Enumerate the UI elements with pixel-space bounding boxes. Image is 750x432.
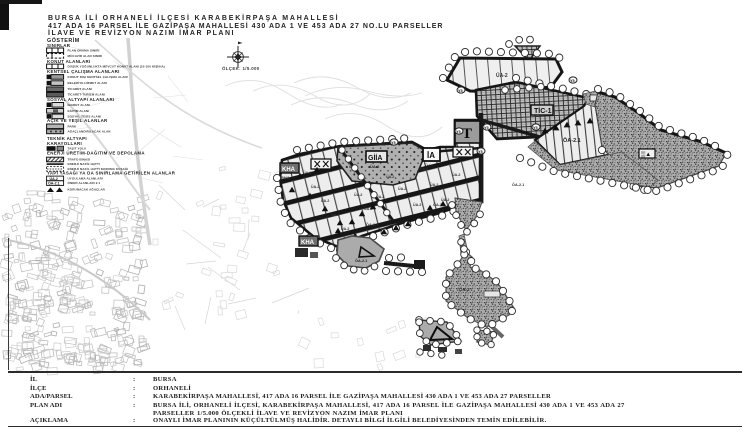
svg-text:ÜA-2: ÜA-2 xyxy=(386,174,394,179)
svg-text:ÜA-2: ÜA-2 xyxy=(321,198,329,203)
svg-text:ÜA-2: ÜA-2 xyxy=(311,184,319,189)
svg-text:ÖA-2.1: ÖA-2.1 xyxy=(563,137,581,144)
svg-text:ÜA-2: ÜA-2 xyxy=(331,212,339,217)
svg-text:ÜA-2: ÜA-2 xyxy=(354,192,362,197)
svg-text:▒▲: ▒▲ xyxy=(641,151,651,158)
svg-text:Y5: Y5 xyxy=(570,79,575,83)
svg-text:TİC-1: TİC-1 xyxy=(534,107,552,115)
svg-text:Y5: Y5 xyxy=(458,89,463,93)
svg-text:BHA: BHA xyxy=(281,175,290,180)
svg-text:ÜA-2: ÜA-2 xyxy=(496,72,508,79)
svg-text:ÜA-2: ÜA-2 xyxy=(441,197,449,202)
svg-text:GİİA: GİİA xyxy=(368,154,382,162)
svg-text:ÖA-2: ÖA-2 xyxy=(459,286,470,292)
svg-text:KHA: KHA xyxy=(301,240,315,246)
svg-text:ÖA-2.1: ÖA-2.1 xyxy=(512,182,524,187)
svg-text:İA: İA xyxy=(427,151,435,160)
svg-text:ÖA-2.1: ÖA-2.1 xyxy=(366,222,378,227)
svg-text:ÜA-2: ÜA-2 xyxy=(420,166,428,171)
svg-text:ÜA-2: ÜA-2 xyxy=(430,182,438,187)
svg-text:ÜA-2: ÜA-2 xyxy=(452,172,460,177)
svg-text:ÜA-2: ÜA-2 xyxy=(341,226,349,231)
svg-text:ÜA-2: ÜA-2 xyxy=(370,164,380,169)
svg-text:ÜA-2: ÜA-2 xyxy=(413,202,421,207)
svg-text:Y5: Y5 xyxy=(391,141,396,145)
svg-text:ÜA-2: ÜA-2 xyxy=(303,170,311,175)
svg-text:Y5: Y5 xyxy=(484,126,489,130)
svg-text:T: T xyxy=(462,126,472,142)
svg-text:KHA: KHA xyxy=(282,167,296,173)
svg-text:Y5: Y5 xyxy=(533,126,538,130)
svg-text:ÖLÇEK: 1/5.000: ÖLÇEK: 1/5.000 xyxy=(222,66,260,71)
svg-text:ÜA-2: ÜA-2 xyxy=(398,186,406,191)
svg-text:ÖA-2.1: ÖA-2.1 xyxy=(355,258,367,263)
svg-text:Y5: Y5 xyxy=(478,150,483,154)
svg-text:Y5: Y5 xyxy=(456,130,461,134)
